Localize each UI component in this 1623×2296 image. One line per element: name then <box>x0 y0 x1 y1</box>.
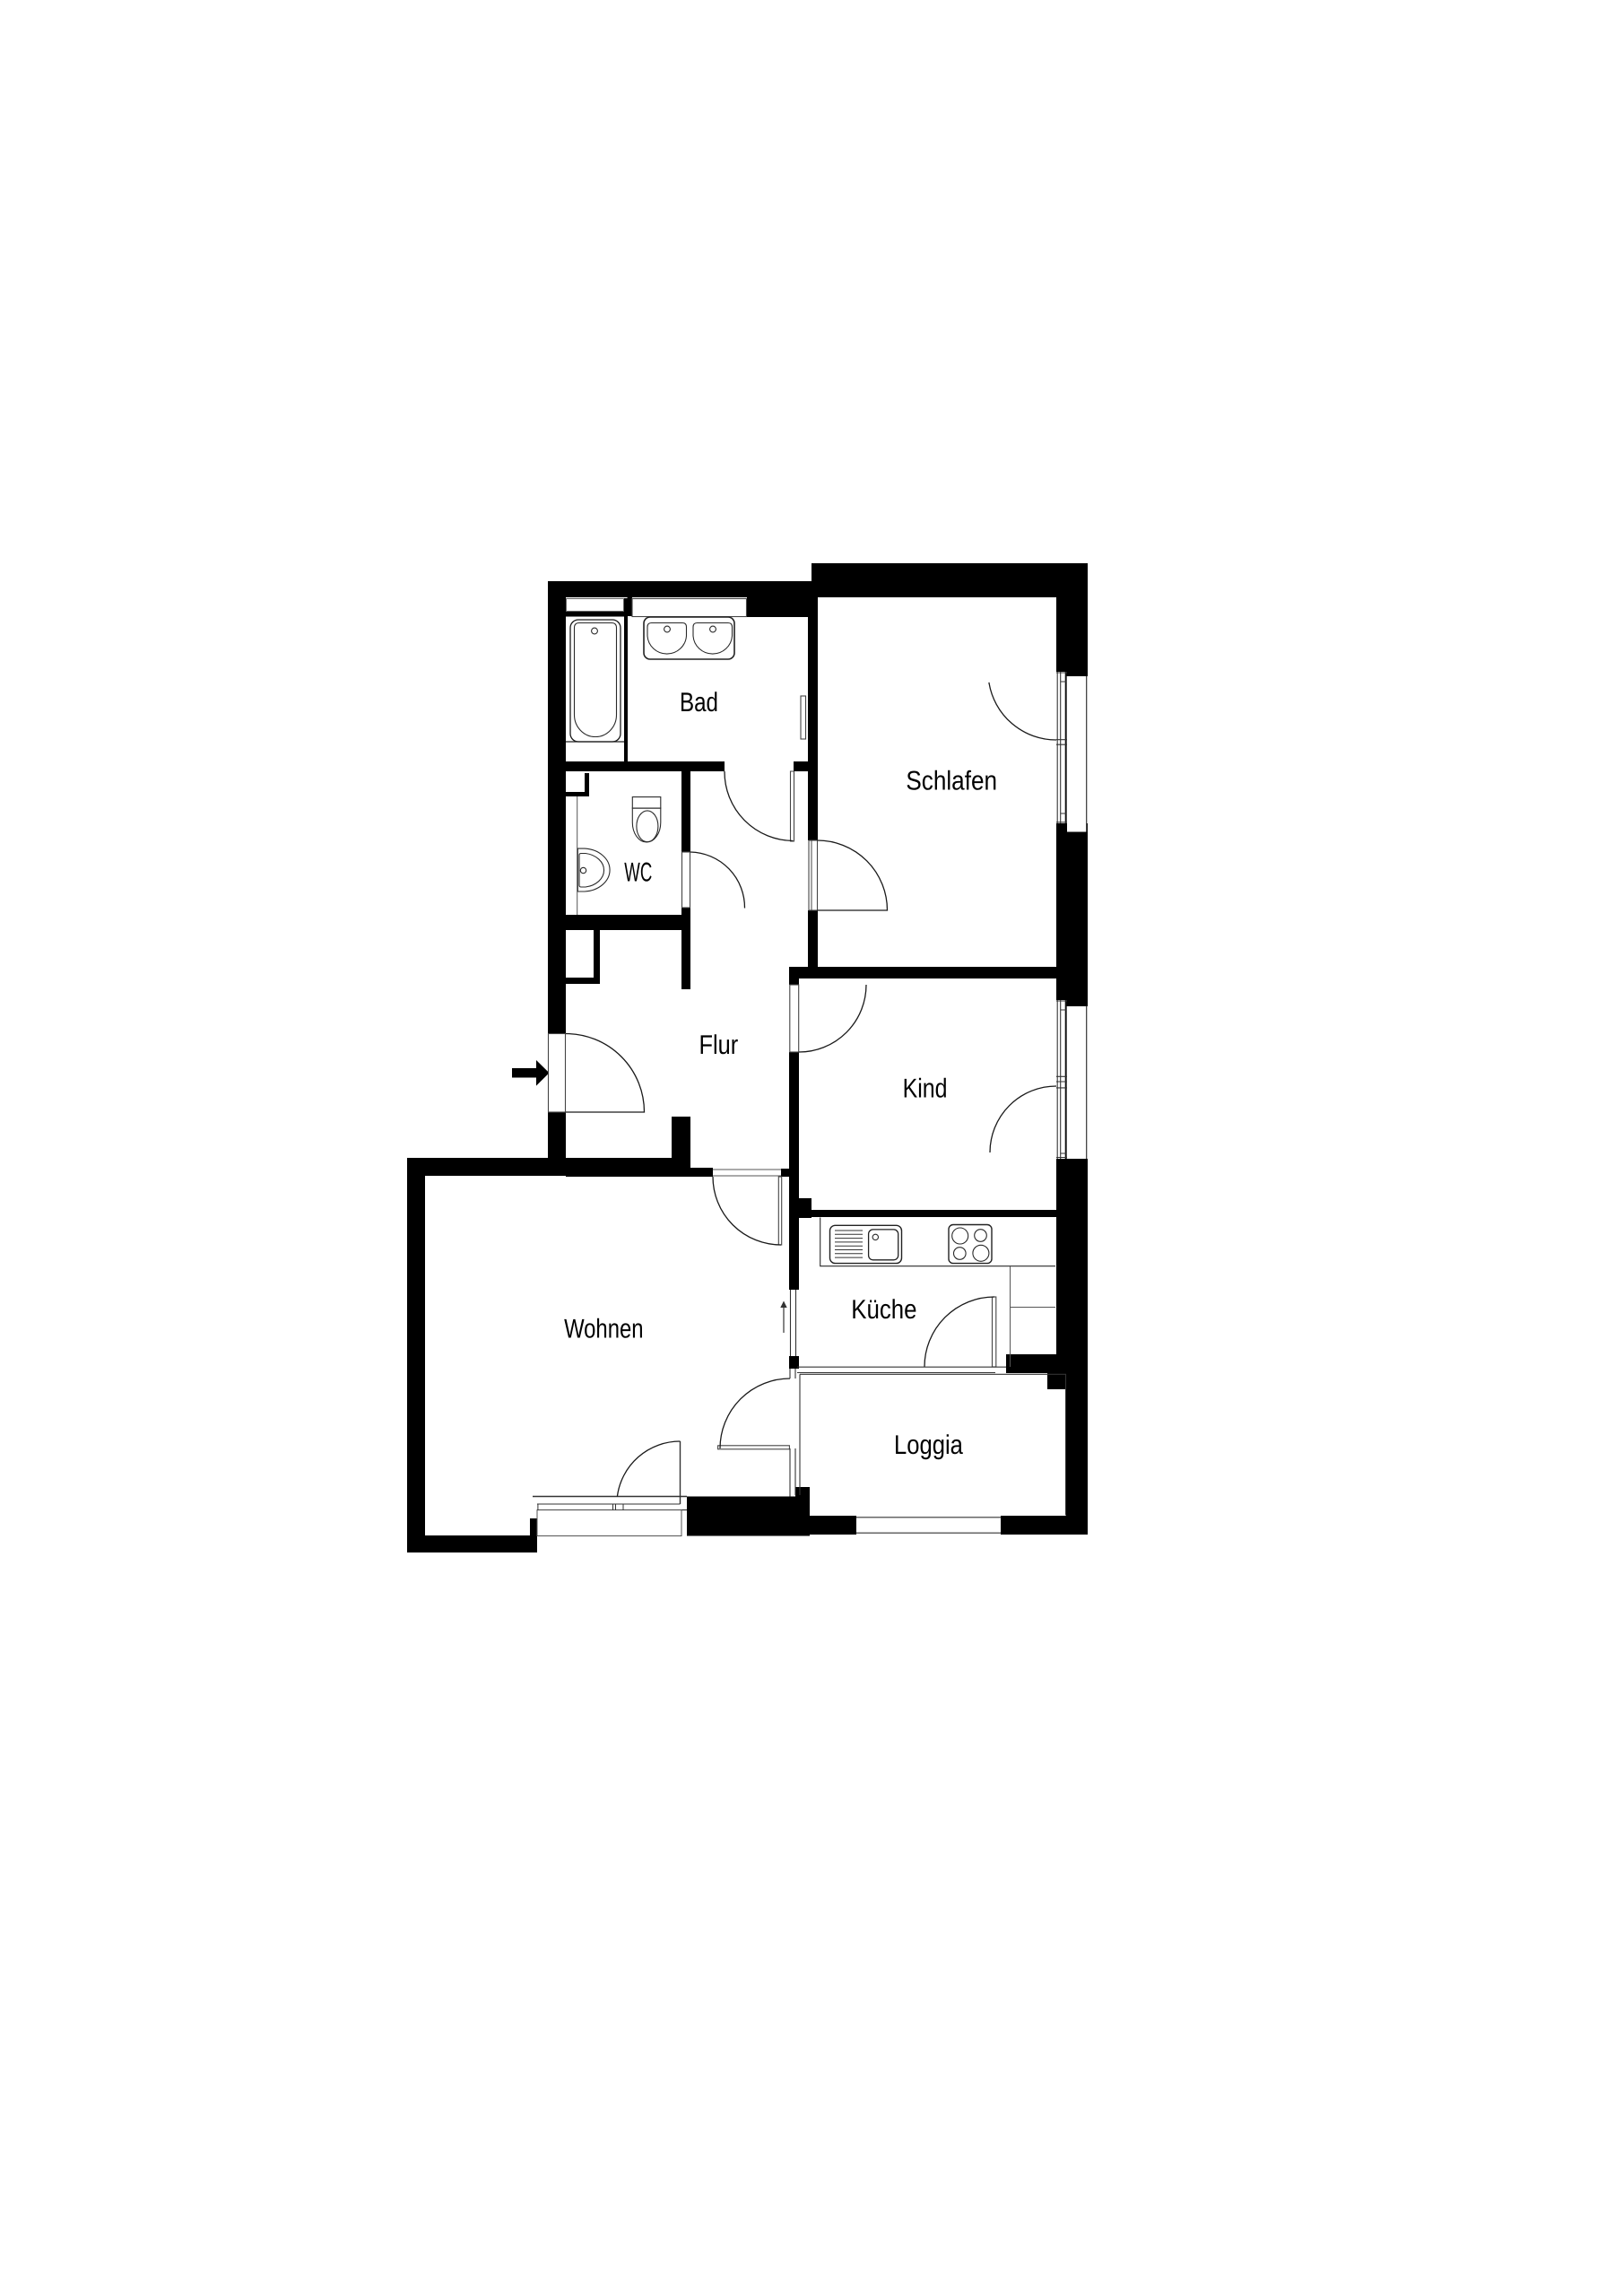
svg-text:Kind: Kind <box>903 1074 948 1103</box>
svg-text:Loggia: Loggia <box>894 1431 963 1460</box>
svg-text:Wohnen: Wohnen <box>564 1315 643 1344</box>
svg-text:Schlafen: Schlafen <box>906 767 997 796</box>
svg-text:Bad: Bad <box>680 688 718 717</box>
svg-text:WC: WC <box>624 858 652 888</box>
svg-text:Küche: Küche <box>851 1295 916 1325</box>
svg-text:Flur: Flur <box>699 1031 739 1060</box>
